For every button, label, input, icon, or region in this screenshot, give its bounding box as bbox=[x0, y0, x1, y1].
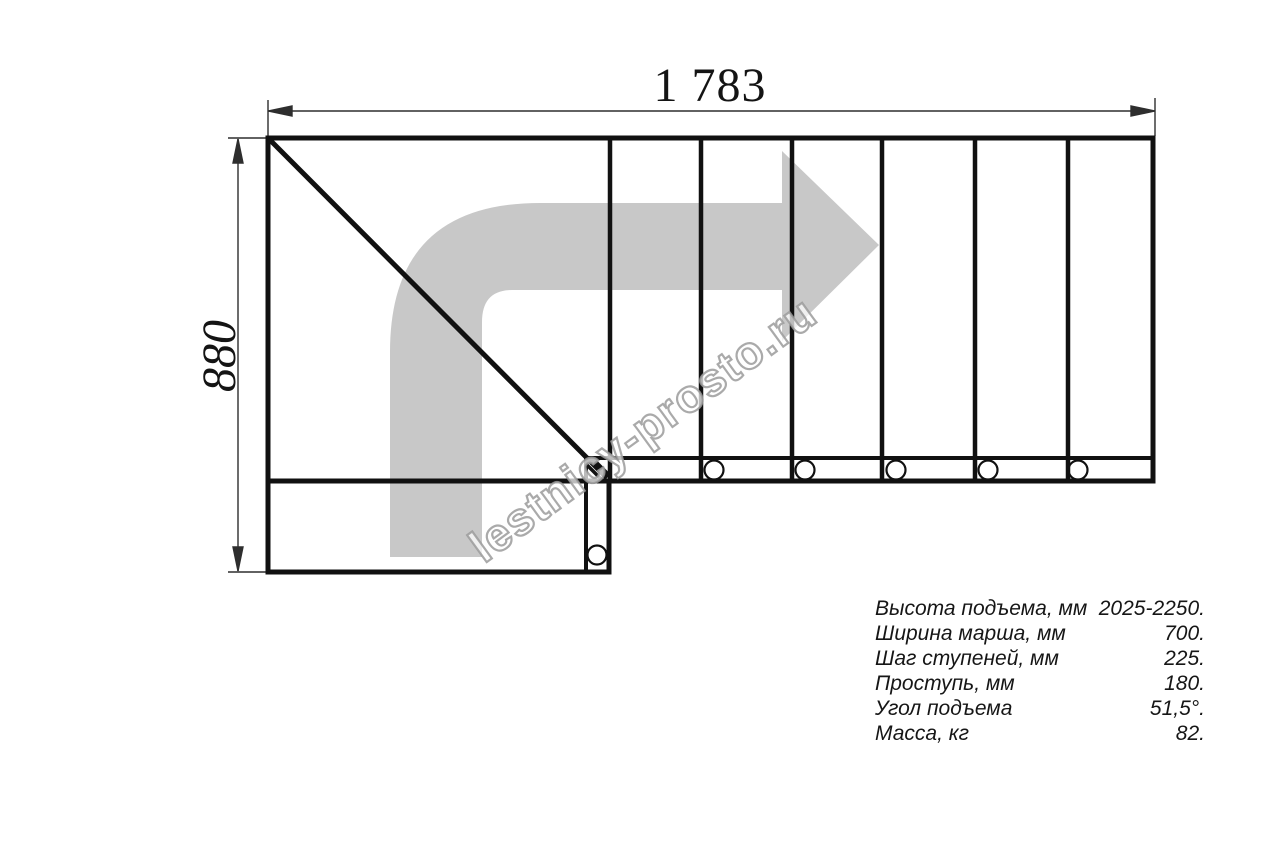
spec-label: Шаг ступеней, мм bbox=[875, 646, 1059, 671]
dimension-graphics bbox=[228, 98, 1155, 572]
bolt-circle bbox=[1069, 461, 1088, 480]
specs-row: Шаг ступеней, мм 225. bbox=[875, 646, 1205, 671]
dimension-arrowhead bbox=[268, 106, 292, 116]
spec-label: Высота подъема, мм bbox=[875, 596, 1087, 621]
specs-row: Ширина марша, мм 700. bbox=[875, 621, 1205, 646]
spec-label: Ширина марша, мм bbox=[875, 621, 1066, 646]
stair-drawing-page: lestnicy-prosto.ru 1 783 880 Высота подъ… bbox=[0, 0, 1280, 853]
spec-value: 225. bbox=[1164, 646, 1205, 671]
dimension-arrowhead bbox=[233, 139, 243, 163]
top-dimension-label: 1 783 bbox=[560, 58, 860, 113]
watermark-text: lestnicy-prosto.ru bbox=[459, 286, 826, 572]
bolt-circle bbox=[887, 461, 906, 480]
direction-arrow-icon bbox=[390, 151, 879, 557]
dimension-arrowhead bbox=[1131, 106, 1155, 116]
left-dimension-label: 880 bbox=[194, 286, 246, 426]
specs-table: Высота подъема, мм 2025-2250. Ширина мар… bbox=[875, 596, 1205, 746]
spec-value: 700. bbox=[1164, 621, 1205, 646]
bolt-circle bbox=[796, 461, 815, 480]
spec-value: 82. bbox=[1176, 721, 1205, 746]
bolt-circle bbox=[979, 461, 998, 480]
spec-value: 2025-2250. bbox=[1099, 596, 1205, 621]
spec-value: 51,5°. bbox=[1150, 696, 1205, 721]
specs-row: Проступь, мм 180. bbox=[875, 671, 1205, 696]
specs-row: Масса, кг 82. bbox=[875, 721, 1205, 746]
specs-row: Высота подъема, мм 2025-2250. bbox=[875, 596, 1205, 621]
bolt-circle bbox=[705, 461, 724, 480]
spec-label: Угол подъема bbox=[875, 696, 1012, 721]
specs-row: Угол подъема 51,5°. bbox=[875, 696, 1205, 721]
spec-label: Масса, кг bbox=[875, 721, 969, 746]
spec-value: 180. bbox=[1164, 671, 1205, 696]
bolt-circle bbox=[588, 546, 607, 565]
spec-label: Проступь, мм bbox=[875, 671, 1015, 696]
dimension-arrowhead bbox=[233, 547, 243, 571]
